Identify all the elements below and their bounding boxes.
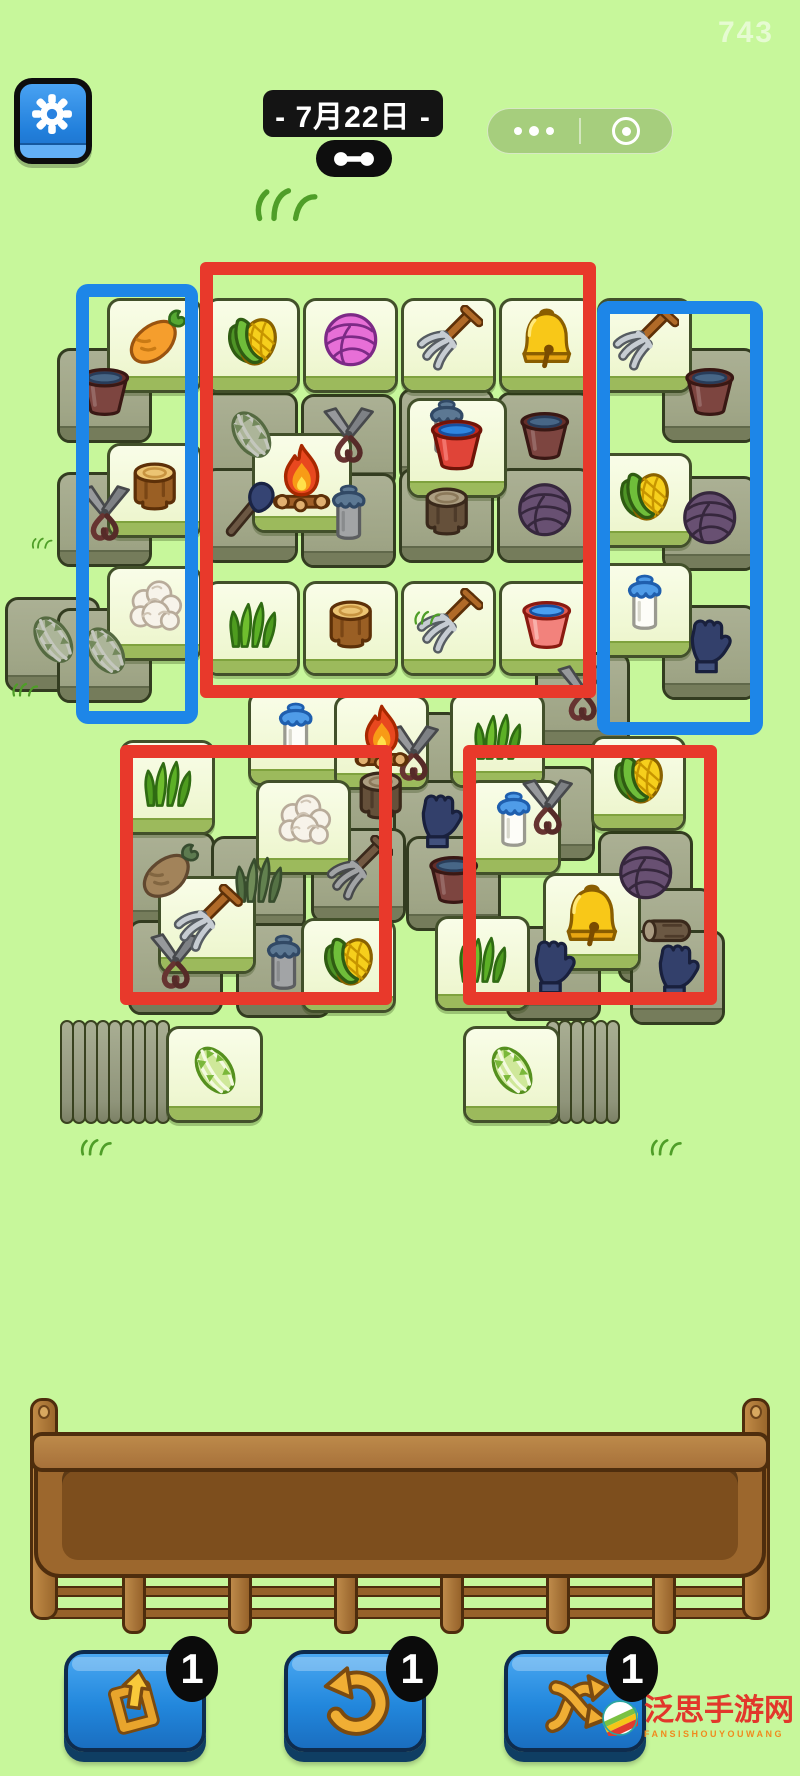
- grass-doodle-icon: [648, 1138, 684, 1156]
- count-badge: 1: [386, 1636, 438, 1702]
- game-board: [0, 0, 800, 1400]
- tile-cabbage[interactable]: [166, 1026, 263, 1123]
- gear-icon: [30, 92, 74, 136]
- shuffle-icon: [539, 1665, 611, 1737]
- tile-stack-slat[interactable]: [606, 1020, 620, 1124]
- pop-out-icon: [99, 1665, 171, 1737]
- undo-icon: [319, 1665, 391, 1737]
- annotation-blue-box: [597, 301, 763, 735]
- annotation-blue-box: [76, 284, 198, 724]
- cabbage-icon: [179, 1034, 250, 1105]
- annotation-red-box: [120, 745, 392, 1005]
- count-badge: 1: [606, 1636, 658, 1702]
- annotation-red-box: [200, 262, 596, 698]
- undo-button[interactable]: 1: [284, 1650, 426, 1752]
- extra-slot-button[interactable]: 1: [64, 1650, 206, 1752]
- site-logo-icon: [602, 1700, 638, 1736]
- tray-top-rail: [30, 1432, 770, 1472]
- grass-doodle-icon: [10, 682, 40, 697]
- tile-cabbage[interactable]: [463, 1026, 560, 1123]
- game-screen: 743 - 7月22日 - 111 泛思手游网 FANSISHOUYOUWANG: [0, 0, 800, 1776]
- tray-slot-area: [62, 1464, 738, 1560]
- grass-doodle-icon: [30, 536, 54, 548]
- count-badge: 1: [166, 1636, 218, 1702]
- annotation-red-box: [463, 745, 717, 1005]
- site-name: 泛思手游网: [644, 1694, 794, 1729]
- grass-doodle-icon: [78, 1138, 114, 1156]
- grass-doodle-icon: [250, 186, 322, 222]
- site-watermark: 泛思手游网 FANSISHOUYOUWANG: [602, 1694, 794, 1739]
- cabbage-icon: [476, 1034, 547, 1105]
- site-name-latin: FANSISHOUYOUWANG: [644, 1729, 784, 1739]
